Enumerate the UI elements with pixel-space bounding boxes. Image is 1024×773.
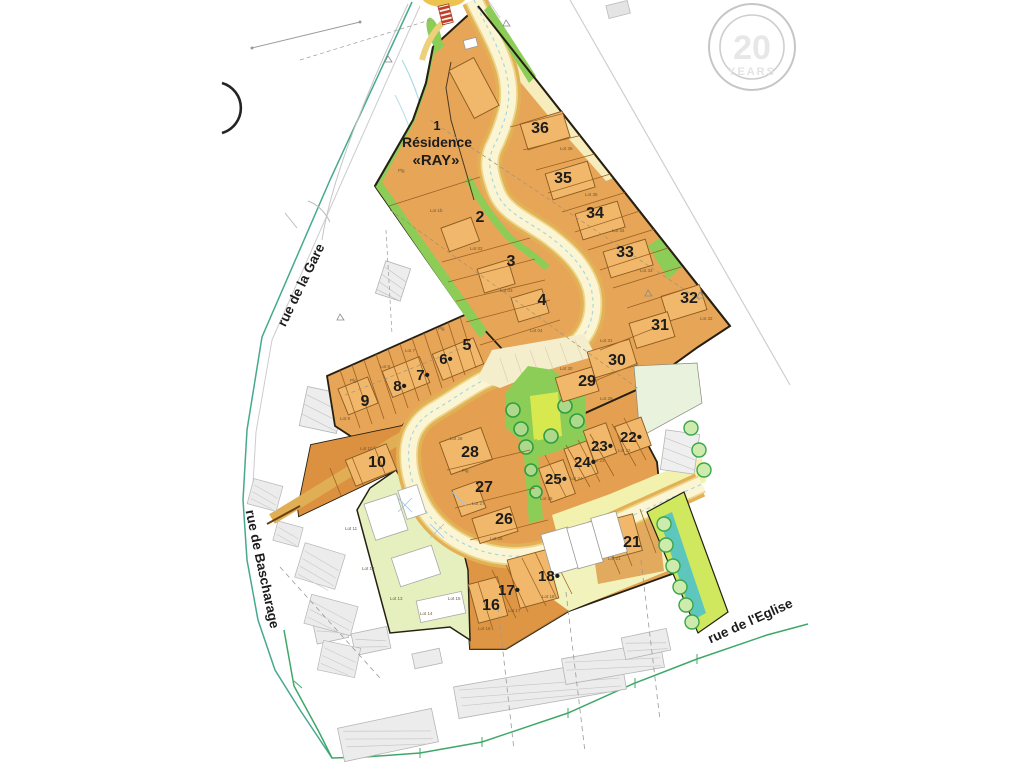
svg-text:32: 32 [680, 290, 698, 307]
svg-text:21: 21 [623, 534, 641, 551]
svg-text:9: 9 [361, 393, 370, 410]
svg-text:Lot 8: Lot 8 [380, 364, 391, 369]
svg-text:Lot 10: Lot 10 [360, 446, 373, 451]
svg-text:Lot 9: Lot 9 [340, 416, 351, 421]
svg-text:17•: 17• [498, 582, 520, 599]
svg-text:8•: 8• [393, 378, 407, 395]
svg-text:Plg: Plg [398, 168, 405, 173]
svg-text:Plg: Plg [350, 378, 357, 383]
svg-text:26: 26 [495, 511, 513, 528]
svg-text:Lot 1b: Lot 1b [430, 208, 443, 213]
svg-text:24•: 24• [574, 454, 596, 471]
svg-text:Lot 12: Lot 12 [362, 566, 375, 571]
svg-text:Lot 31: Lot 31 [600, 338, 613, 343]
svg-text:Lot 26: Lot 26 [490, 536, 503, 541]
svg-text:Lot 32: Lot 32 [700, 316, 713, 321]
svg-text:Plg: Plg [462, 468, 469, 473]
svg-text:Lot 22: Lot 22 [618, 448, 631, 453]
svg-text:35: 35 [554, 170, 572, 187]
svg-text:36: 36 [531, 120, 549, 137]
svg-text:Lot 34: Lot 34 [612, 228, 625, 233]
svg-text:Résidence: Résidence [402, 134, 472, 150]
svg-text:2: 2 [476, 209, 485, 226]
svg-text:10: 10 [368, 454, 386, 471]
svg-text:Lot 16: Lot 16 [478, 626, 491, 631]
svg-text:6•: 6• [439, 351, 453, 368]
svg-text:Lot 29: Lot 29 [600, 396, 613, 401]
svg-text:28: 28 [461, 444, 479, 461]
svg-text:Lot 7: Lot 7 [405, 348, 416, 353]
svg-text:4: 4 [538, 292, 547, 309]
svg-text:Lot 18: Lot 18 [542, 594, 555, 599]
svg-text:1: 1 [433, 118, 440, 133]
svg-text:22•: 22• [620, 429, 642, 446]
svg-text:Lot 03: Lot 03 [500, 288, 513, 293]
svg-text:YEARS: YEARS [728, 66, 776, 78]
svg-text:33: 33 [616, 244, 634, 261]
svg-text:Lot 17: Lot 17 [508, 608, 521, 613]
svg-text:Lot 35: Lot 35 [585, 192, 598, 197]
svg-text:Lot 24: Lot 24 [570, 476, 583, 481]
svg-text:3: 3 [507, 253, 516, 270]
svg-text:Lot 33: Lot 33 [640, 268, 653, 273]
svg-text:18•: 18• [538, 568, 560, 585]
svg-text:Lot 13: Lot 13 [390, 596, 403, 601]
svg-text:31: 31 [651, 317, 669, 334]
svg-text:«RAY»: «RAY» [413, 152, 460, 169]
svg-text:Lot 30: Lot 30 [560, 366, 573, 371]
svg-text:5: 5 [463, 337, 472, 354]
svg-text:Lot 02: Lot 02 [470, 246, 483, 251]
svg-text:23•: 23• [591, 438, 613, 455]
svg-text:Lot 27: Lot 27 [472, 501, 485, 506]
svg-text:Lot 14: Lot 14 [420, 611, 433, 616]
svg-text:Lot 36: Lot 36 [560, 146, 573, 151]
svg-text:7•: 7• [416, 367, 430, 384]
svg-text:Lot 11: Lot 11 [345, 526, 358, 531]
svg-text:20: 20 [733, 29, 771, 67]
svg-text:Lot 15: Lot 15 [448, 596, 461, 601]
svg-text:Plg: Plg [438, 326, 445, 331]
svg-text:.: . [445, 0, 446, 1]
svg-text:27: 27 [475, 479, 493, 496]
svg-text:Lot 04: Lot 04 [530, 328, 543, 333]
svg-text:Lot 28: Lot 28 [450, 436, 463, 441]
svg-text:Lot 21: Lot 21 [608, 556, 621, 561]
svg-text:30: 30 [608, 352, 626, 369]
svg-text:29: 29 [578, 373, 596, 390]
svg-text:Lot 25: Lot 25 [540, 496, 553, 501]
svg-text:25•: 25• [545, 471, 567, 488]
svg-text:16: 16 [482, 597, 500, 614]
svg-text:34: 34 [586, 205, 604, 222]
